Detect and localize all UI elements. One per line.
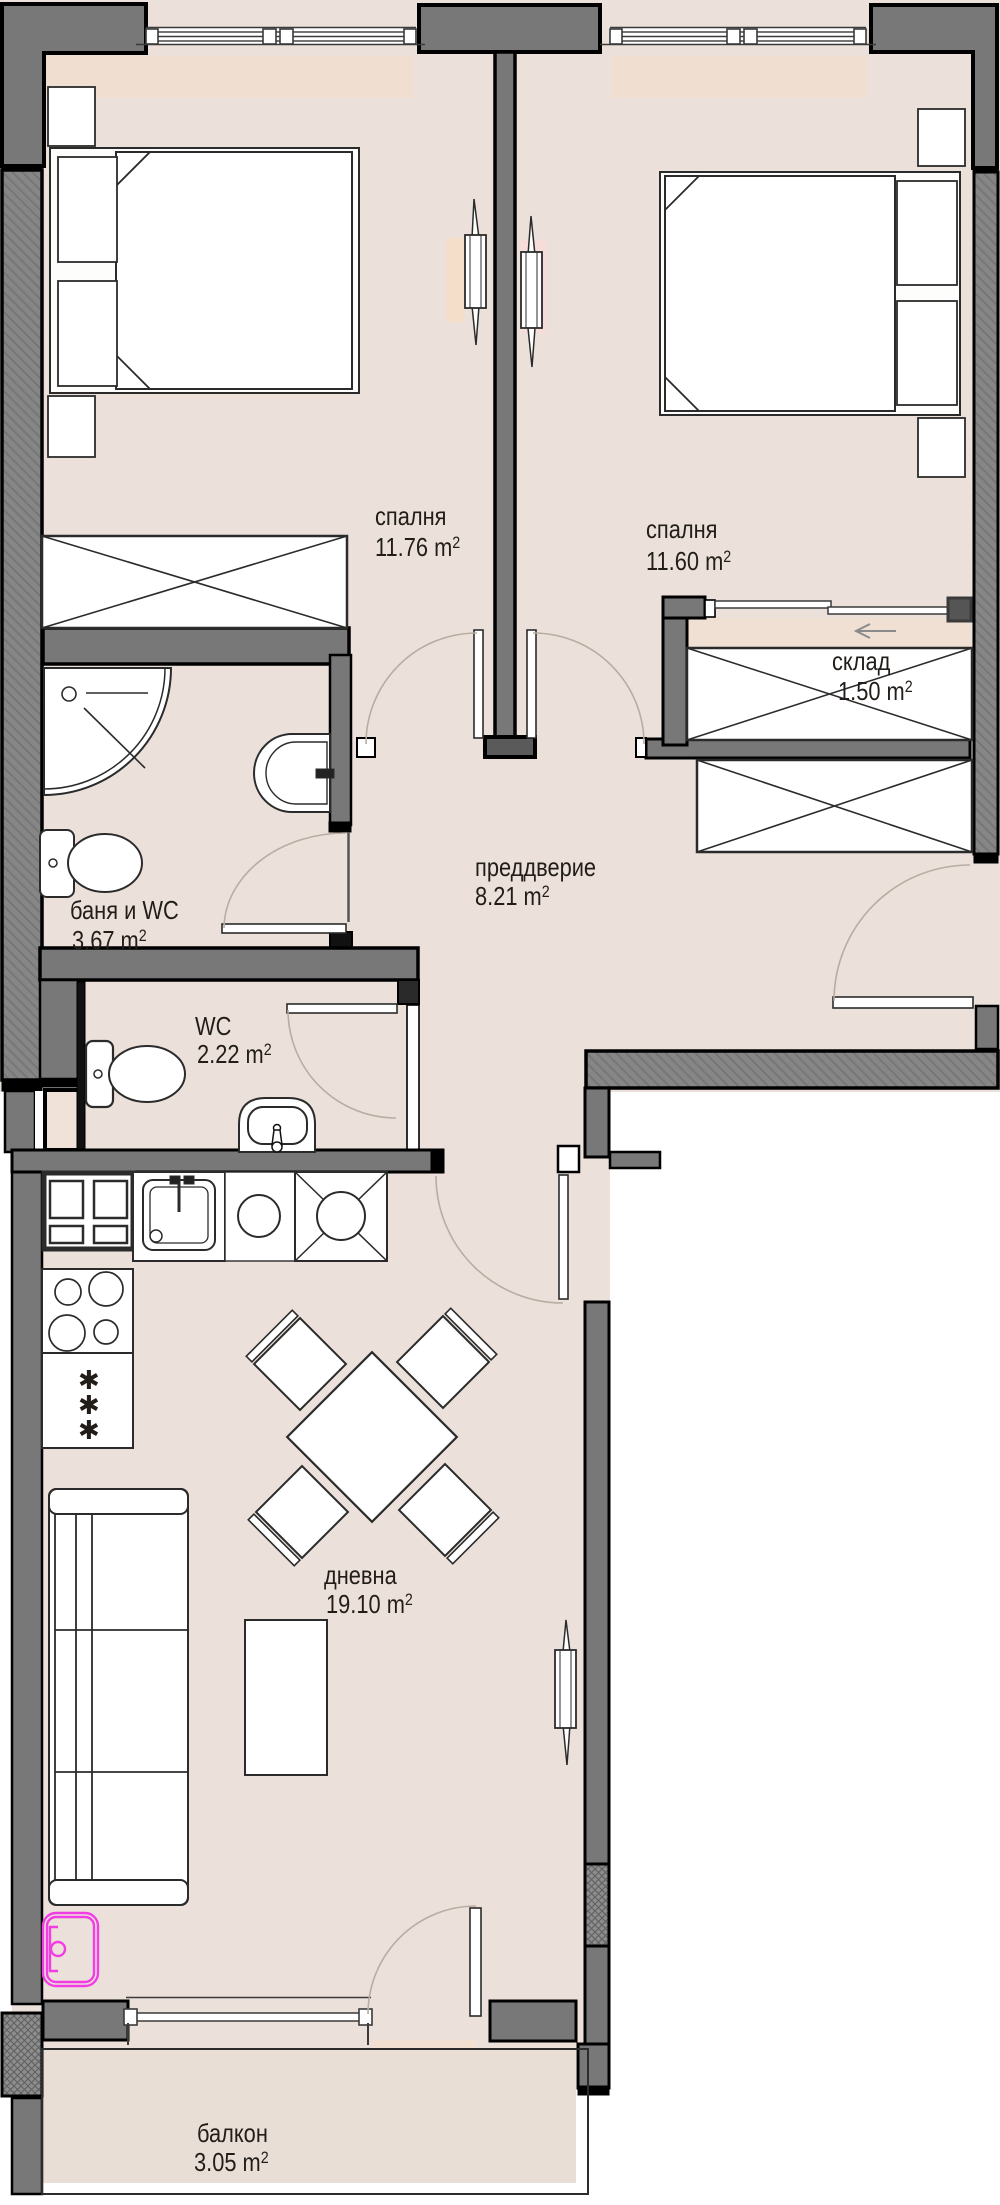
svg-text:✱: ✱	[78, 1415, 100, 1445]
svg-text:11.60 m2: 11.60 m2	[646, 547, 731, 576]
svg-text:баня и WC: баня и WC	[70, 896, 179, 925]
svg-text:1.50 m2: 1.50 m2	[838, 677, 913, 706]
svg-text:склад: склад	[832, 647, 890, 676]
svg-text:WC: WC	[195, 1012, 231, 1041]
svg-text:8.21 m2: 8.21 m2	[475, 882, 550, 911]
svg-text:балкон: балкон	[197, 2119, 268, 2148]
svg-text:спалня: спалня	[375, 502, 447, 531]
svg-text:19.10 m2: 19.10 m2	[326, 1590, 413, 1619]
svg-text:3.05 m2: 3.05 m2	[194, 2148, 269, 2177]
svg-text:3.67 m2: 3.67 m2	[72, 926, 147, 955]
svg-text:преддверие: преддверие	[475, 853, 596, 882]
svg-text:дневна: дневна	[324, 1561, 397, 1590]
svg-text:2.22 m2: 2.22 m2	[197, 1040, 272, 1069]
svg-text:11.76 m2: 11.76 m2	[375, 533, 460, 562]
svg-text:спалня: спалня	[646, 515, 718, 544]
